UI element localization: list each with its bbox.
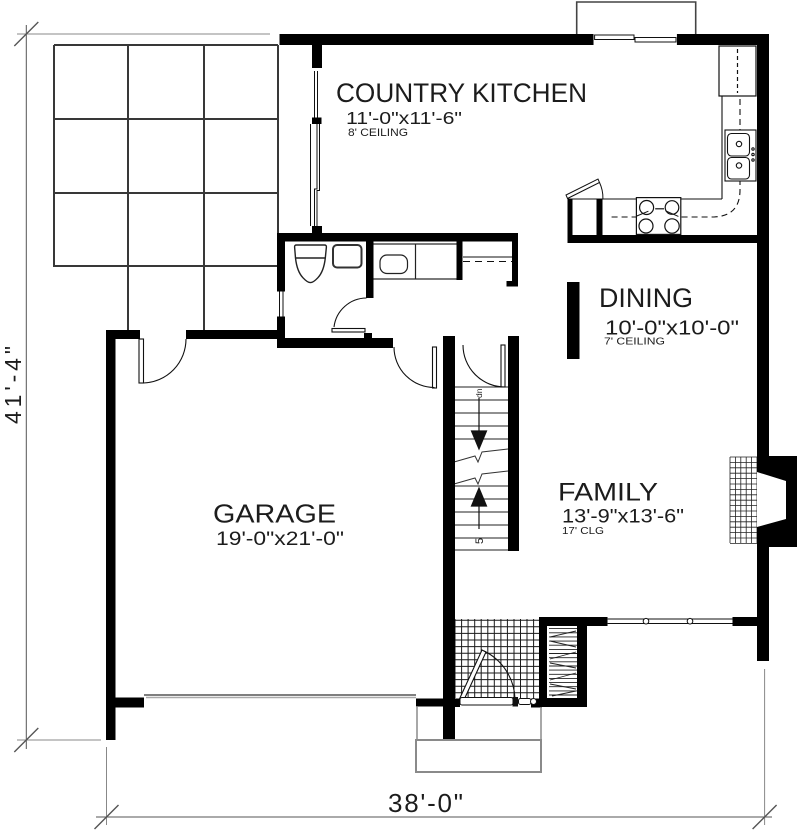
svg-text:GARAGE: GARAGE <box>213 499 336 529</box>
svg-text:19'-0"x21'-0": 19'-0"x21'-0" <box>216 529 344 550</box>
svg-text:FAMILY: FAMILY <box>558 479 658 507</box>
svg-text:17' CLG: 17' CLG <box>562 525 604 537</box>
svg-text:8' CEILING: 8' CEILING <box>348 127 408 139</box>
svg-text:COUNTRY KITCHEN: COUNTRY KITCHEN <box>336 78 587 108</box>
svg-text:DINING: DINING <box>599 283 693 313</box>
svg-text:5: 5 <box>474 538 486 544</box>
svg-text:dn: dn <box>474 388 484 398</box>
svg-text:11'-0"x11'-6": 11'-0"x11'-6" <box>346 108 462 128</box>
svg-text:7' CEILING: 7' CEILING <box>604 336 665 348</box>
